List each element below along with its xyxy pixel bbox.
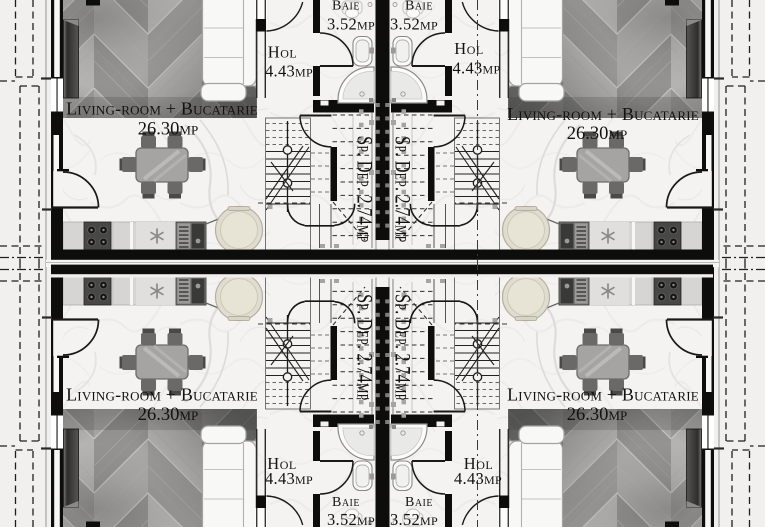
- svg-text:4.43mp: 4.43mp: [265, 62, 313, 81]
- svg-text:Baie: Baie: [332, 495, 360, 510]
- svg-text:4.43mp: 4.43mp: [452, 59, 500, 78]
- svg-text:4.43mp: 4.43mp: [265, 469, 313, 488]
- svg-text:3.52mp: 3.52mp: [327, 510, 375, 527]
- svg-text:Living-room + Bucatarie: Living-room + Bucatarie: [507, 104, 699, 124]
- svg-text:Baie: Baie: [405, 495, 433, 510]
- svg-text:Living-room + Bucatarie: Living-room + Bucatarie: [66, 385, 258, 405]
- svg-text:Hol: Hol: [454, 39, 483, 58]
- svg-text:3.52mp: 3.52mp: [390, 15, 438, 34]
- svg-text:26.30mp: 26.30mp: [138, 405, 198, 425]
- svg-text:3.52mp: 3.52mp: [327, 15, 375, 34]
- svg-text:Sp. Dep. 2.74mp: Sp. Dep. 2.74mp: [390, 294, 414, 400]
- svg-text:Baie: Baie: [405, 0, 433, 14]
- svg-text:Sp. Dep. 2.74mp: Sp. Dep. 2.74mp: [352, 294, 376, 400]
- svg-text:3.52mp: 3.52mp: [390, 510, 438, 527]
- svg-text:Hol: Hol: [268, 43, 297, 62]
- svg-text:Sp. Dep. 2.74mp: Sp. Dep. 2.74mp: [390, 136, 414, 242]
- svg-text:4.43mp: 4.43mp: [454, 469, 502, 488]
- svg-text:26.30mp: 26.30mp: [138, 120, 198, 140]
- svg-text:26.30mp: 26.30mp: [567, 405, 627, 425]
- svg-text:Baie: Baie: [332, 0, 360, 14]
- svg-text:Living-room + Bucatarie: Living-room + Bucatarie: [66, 99, 258, 119]
- svg-text:Living-room + Bucatarie: Living-room + Bucatarie: [507, 385, 699, 405]
- svg-text:26.30mp: 26.30mp: [567, 124, 627, 144]
- svg-text:Sp. Dep. 2.74mp: Sp. Dep. 2.74mp: [352, 136, 376, 242]
